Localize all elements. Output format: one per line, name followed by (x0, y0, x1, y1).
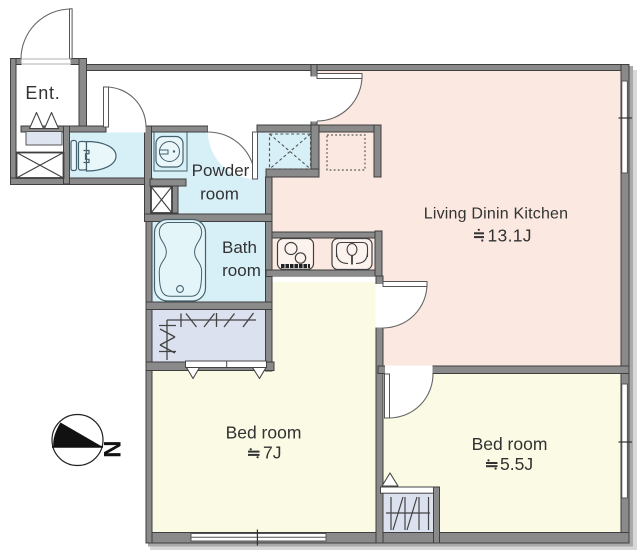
svg-text:Ent.: Ent. (25, 83, 60, 103)
svg-text:Bed room: Bed room (226, 423, 302, 443)
svg-text:Living Dinin Kitchen: Living Dinin Kitchen (424, 206, 569, 223)
svg-text:Bed room: Bed room (472, 434, 548, 454)
svg-text:N: N (98, 441, 125, 458)
svg-text:room: room (200, 185, 239, 204)
svg-text:room: room (222, 261, 261, 280)
svg-text:Powder: Powder (192, 161, 250, 180)
svg-text:13.1J: 13.1J (488, 226, 532, 246)
svg-text:Bath: Bath (222, 238, 257, 257)
svg-text:7J: 7J (263, 442, 281, 462)
svg-text:5.5J: 5.5J (500, 454, 533, 474)
